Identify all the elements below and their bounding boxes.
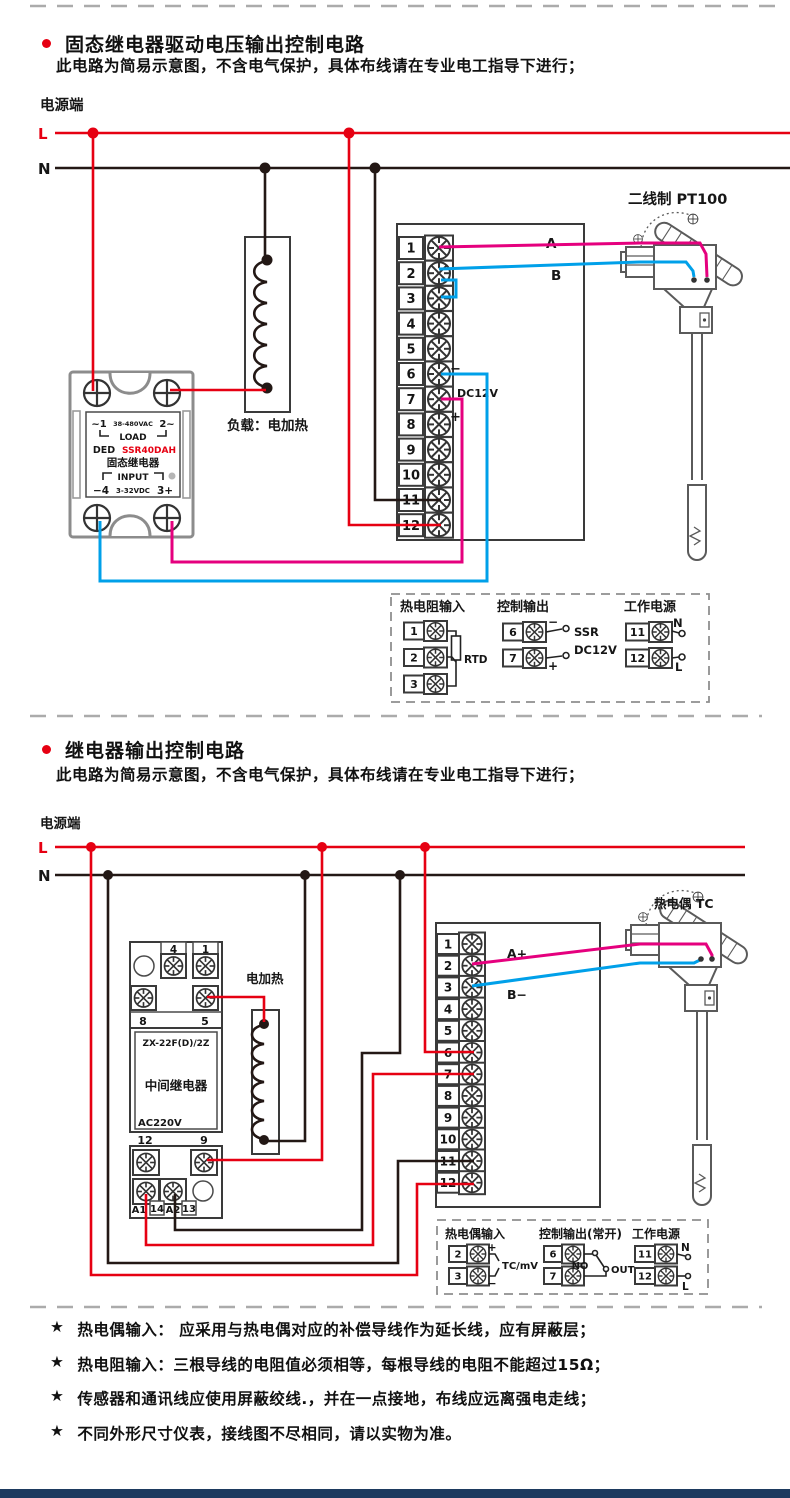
terminal-4: 4 xyxy=(399,311,453,336)
terminal-screw-icon xyxy=(428,439,450,461)
terminal-2: 2 xyxy=(399,261,453,286)
terminal-6: 6 xyxy=(503,622,546,642)
power-terminal-label-2: 电源端 xyxy=(40,815,81,832)
terminal-number: 1 xyxy=(444,937,452,951)
ssr-model: SSR40DAH xyxy=(122,446,176,456)
ssr-load-label: LOAD xyxy=(119,433,146,443)
terminal-screw-icon xyxy=(565,1246,580,1261)
terminal-number: 4 xyxy=(444,1002,452,1016)
power-rails-2 xyxy=(55,842,745,880)
terminal-number: 2 xyxy=(410,651,418,664)
terminal-12: 12 xyxy=(626,648,672,668)
terminal-7: 7 xyxy=(503,648,546,668)
terminal-10: 10 xyxy=(437,1128,485,1151)
legend2-tc-plus: + xyxy=(487,1241,496,1254)
terminal-1: 1 xyxy=(404,621,447,641)
legend1-power-wiring xyxy=(672,631,685,661)
terminal-11: 11 xyxy=(626,622,672,642)
terminal-screw-icon xyxy=(526,624,543,641)
terminal-number: 7 xyxy=(509,652,517,665)
relay-term-a1: A1 xyxy=(132,1205,147,1216)
live-label-2: L xyxy=(38,839,48,857)
terminal-number: 3 xyxy=(410,678,418,691)
output-plus-label: + xyxy=(450,410,461,425)
legend1-output-title: 控制输出 xyxy=(497,599,549,615)
sensor-label-2: 热电偶 TC xyxy=(654,896,714,911)
legend2-power-title: 工作电源 xyxy=(632,1226,680,1241)
section2-title: 继电器输出控制电路 xyxy=(65,736,245,763)
legend1-output-wiring xyxy=(546,626,569,659)
section2-header: 继电器输出控制电路 xyxy=(42,736,245,763)
terminal-number: 3 xyxy=(406,292,415,307)
relay-term-14: 14 xyxy=(150,1204,164,1215)
legend2-tc-wiring xyxy=(489,1254,499,1276)
legend-box-1: 热电阻输入 控制输出 工作电源 123 67 1112 RTD xyxy=(391,594,709,702)
heater-label-2: 电加热 xyxy=(246,971,284,986)
neutral-label-2: N xyxy=(38,867,51,885)
terminal-12: 12 xyxy=(635,1267,677,1286)
legend1-power-title: 工作电源 xyxy=(624,599,676,615)
footnote-item: ★ 传感器和通讯线应使用屏蔽绞线.，并在一点接地，布线应远离强电走线； xyxy=(50,1387,760,1409)
terminal-screw-icon xyxy=(658,1268,673,1283)
legend1-power-l: L xyxy=(675,660,683,674)
terminal-3: 3 xyxy=(404,674,447,694)
terminal-screw-icon xyxy=(652,650,669,667)
terminal-number: 9 xyxy=(444,1111,452,1125)
heater-load-1 xyxy=(245,237,290,412)
terminal-5: 5 xyxy=(399,336,453,361)
terminal-9: 9 xyxy=(399,437,453,462)
terminal-2: 2 xyxy=(404,648,447,668)
terminal-5: 5 xyxy=(437,1019,485,1042)
wiring-diagram-page: 电源端 L N xyxy=(0,0,790,1498)
terminal-number: 3 xyxy=(455,1272,462,1283)
footnote-item: ★ 热电偶输入： 应采用与热电偶对应的补偿导线作为延长线，应有屏蔽层； xyxy=(50,1318,760,1340)
footer-bar xyxy=(0,1489,790,1498)
wire-b-label: B xyxy=(551,268,561,284)
terminal-number: 5 xyxy=(444,1024,452,1038)
terminal-screw-icon xyxy=(658,1246,673,1261)
terminal-number: 8 xyxy=(444,1089,452,1103)
bullet-icon xyxy=(42,39,51,48)
relay-voltage: AC220V xyxy=(138,1118,182,1129)
section2-diagram: 电源端 L N 4 1 xyxy=(38,815,750,1294)
ssr-ac-terminal2: 2~ xyxy=(159,419,174,430)
legend1-out-ssr: SSR xyxy=(574,625,599,639)
live-label: L xyxy=(38,125,48,143)
star-icon: ★ xyxy=(50,1353,64,1375)
terminal-number: 3 xyxy=(444,981,452,995)
terminal-number: 9 xyxy=(406,443,415,458)
terminal-2: 2 xyxy=(449,1245,489,1264)
thermocouple-sensor xyxy=(626,891,750,1205)
legend1-out-minus: − xyxy=(548,615,558,629)
star-icon: ★ xyxy=(50,1422,64,1444)
sensor-label-1: 二线制 PT100 xyxy=(628,190,727,208)
legend2-power-wiring xyxy=(677,1254,691,1279)
terminal-screw-icon xyxy=(470,1268,485,1283)
terminal-number: 1 xyxy=(410,625,418,638)
legend1-out-plus: + xyxy=(548,659,558,673)
terminal-screw-icon xyxy=(462,999,481,1018)
ssr-input-label: INPUT xyxy=(118,473,150,483)
legend1-rtd-label: RTD xyxy=(464,654,488,666)
terminal-screw-icon xyxy=(427,676,444,693)
terminal-screw-icon xyxy=(462,1108,481,1127)
terminal-screw-icon xyxy=(462,978,481,997)
terminal-number: 7 xyxy=(406,393,415,408)
section2-subtitle: 此电路为简易示意图，不含电气保护，具体布线请在专业电工指导下进行； xyxy=(56,763,584,785)
terminal-1: 1 xyxy=(437,933,485,956)
legend2-power-n: N xyxy=(681,1242,690,1254)
legend2-input-title: 热电偶输入 xyxy=(445,1226,505,1241)
terminal-2: 2 xyxy=(437,954,485,977)
terminal-8: 8 xyxy=(437,1084,485,1107)
terminal-11: 11 xyxy=(635,1245,677,1264)
neutral-label: N xyxy=(38,160,51,178)
terminal-3: 3 xyxy=(437,976,485,999)
relay-term-13: 13 xyxy=(182,1204,196,1215)
terminal-screw-icon xyxy=(462,1086,481,1105)
footnote-item: ★ 不同外形尺寸仪表，接线图不尽相同，请以实物为准。 xyxy=(50,1422,760,1444)
terminal-screw-icon xyxy=(428,413,450,435)
ssr-ac-voltage: 38-480VAC xyxy=(113,420,153,428)
terminal-number: 10 xyxy=(440,1133,457,1147)
legend2-out-out: OUT xyxy=(611,1265,635,1276)
ssr-dc-plus: 3+ xyxy=(157,485,173,497)
legend2-output-title: 控制输出(常开) xyxy=(539,1226,622,1241)
terminal-8: 8 xyxy=(399,412,453,437)
ssr-dc-minus: −4 xyxy=(93,485,109,497)
terminal-number: 11 xyxy=(638,1250,652,1261)
terminal-number: 11 xyxy=(630,626,645,639)
terminal-screw-icon xyxy=(428,464,450,486)
ssr-led-dot xyxy=(169,473,176,480)
terminal-screw-icon xyxy=(526,650,543,667)
terminal-screw-icon xyxy=(428,313,450,335)
ssr-dc-voltage: 3-32VDC xyxy=(116,487,150,495)
legend2-tc-terminals: 23 xyxy=(449,1245,489,1286)
pt100-sensor xyxy=(621,213,745,560)
section1-title: 固态继电器驱动电压输出控制电路 xyxy=(65,30,365,57)
legend2-tc-minus: − xyxy=(487,1277,496,1290)
power-rails xyxy=(55,128,790,174)
terminal-screw-icon xyxy=(427,623,444,640)
legend2-out-no: NO xyxy=(572,1261,589,1272)
power-terminal-label: 电源端 xyxy=(40,96,84,114)
terminal-number: 2 xyxy=(455,1250,462,1261)
ssr-name: 固态继电器 xyxy=(107,456,160,469)
footnote-item: ★ 热电阻输入：三根导线的电阻值必须相等，每根导线的电阻不能超过15Ω； xyxy=(50,1353,760,1375)
terminal-3: 3 xyxy=(449,1267,489,1286)
terminal-number: 2 xyxy=(406,267,415,282)
terminal-number: 12 xyxy=(638,1272,652,1283)
terminal-screw-icon xyxy=(427,649,444,666)
ssr-ac-terminal1: ~1 xyxy=(91,419,106,430)
legend-box-2: 热电偶输入 控制输出(常开) 工作电源 23 67 1112 + − TC/mV xyxy=(437,1220,708,1294)
ssr-solid-state-relay: ~1 38-480VAC 2~ LOAD DED SSR40DAH 固态继电器 … xyxy=(70,372,193,537)
load-label: 负载：电加热 xyxy=(227,417,308,434)
legend2-power-l: L xyxy=(682,1281,689,1293)
terminal-9: 9 xyxy=(437,1106,485,1129)
legend1-rtd-wiring xyxy=(447,631,461,686)
terminal-number: 10 xyxy=(402,468,420,483)
terminal-screw-icon xyxy=(428,338,450,360)
section1-header: 固态继电器驱动电压输出控制电路 xyxy=(42,30,365,57)
terminal-number: 6 xyxy=(406,368,415,383)
terminal-10: 10 xyxy=(399,462,453,487)
terminal-number: 5 xyxy=(406,342,415,357)
footnote-text: 不同外形尺寸仪表，接线图不尽相同，请以实物为准。 xyxy=(77,1422,461,1444)
terminal-number: 12 xyxy=(402,519,420,534)
terminal-4: 4 xyxy=(437,998,485,1021)
footnote-text: 传感器和通讯线应使用屏蔽绞线.，并在一点接地，布线应远离强电走线； xyxy=(77,1387,595,1409)
relay-term-a2: A2 xyxy=(166,1205,181,1216)
legend1-out-dc12v: DC12V xyxy=(574,643,617,657)
terminal-number: 6 xyxy=(550,1250,557,1261)
terminal-screw-icon xyxy=(462,934,481,953)
terminal-number: 1 xyxy=(406,242,415,257)
terminal-number: 8 xyxy=(406,418,415,433)
intermediate-relay: 4 1 8 5 ZX-22F(D)/2Z 中间继电器 AC220V 12 xyxy=(130,942,222,1218)
terminal-screw-icon xyxy=(652,624,669,641)
legend1-rtd-terminals: 123 xyxy=(404,621,447,694)
wire-b-minus-label: B− xyxy=(507,987,527,1002)
star-icon: ★ xyxy=(50,1318,64,1340)
footnote-text: 热电偶输入： 应采用与热电偶对应的补偿导线作为延长线，应有屏蔽层； xyxy=(77,1318,595,1340)
bullet-icon xyxy=(42,745,51,754)
relay-term-8: 8 xyxy=(139,1015,147,1028)
terminal-number: 4 xyxy=(406,317,415,332)
legend1-output-terminals: 67 xyxy=(503,622,546,668)
ssr-brand: DED xyxy=(93,445,115,456)
terminal-number: 12 xyxy=(630,652,645,665)
relay-model: ZX-22F(D)/2Z xyxy=(143,1039,210,1049)
section1-subtitle: 此电路为简易示意图，不含电气保护，具体布线请在专业电工指导下进行； xyxy=(56,54,584,76)
terminal-number: 7 xyxy=(550,1272,557,1283)
relay-name: 中间继电器 xyxy=(145,1078,208,1093)
legend1-power-n: N xyxy=(673,616,683,630)
star-icon: ★ xyxy=(50,1387,64,1409)
legend1-input-title: 热电阻输入 xyxy=(400,599,465,615)
legend2-power-terminals: 1112 xyxy=(635,1245,677,1286)
footnotes: ★ 热电偶输入： 应采用与热电偶对应的补偿导线作为延长线，应有屏蔽层； ★ 热电… xyxy=(50,1318,760,1456)
legend1-power-terminals: 1112 xyxy=(626,622,672,668)
terminal-screw-icon xyxy=(462,1130,481,1149)
legend2-tc-label: TC/mV xyxy=(502,1261,538,1272)
controller-terminal-strip-2: 123456789101112 xyxy=(437,933,485,1195)
section1-diagram: 电源端 L N xyxy=(38,96,790,702)
terminal-number: 2 xyxy=(444,959,452,973)
relay-term-5: 5 xyxy=(201,1015,209,1028)
terminal-screw-icon xyxy=(462,956,481,975)
terminal-screw-icon xyxy=(462,1021,481,1040)
heater-load-2 xyxy=(252,1010,279,1154)
footnote-text: 热电阻输入：三根导线的电阻值必须相等，每根导线的电阻不能超过15Ω； xyxy=(77,1353,609,1375)
terminal-number: 6 xyxy=(509,626,517,639)
terminal-screw-icon xyxy=(470,1246,485,1261)
